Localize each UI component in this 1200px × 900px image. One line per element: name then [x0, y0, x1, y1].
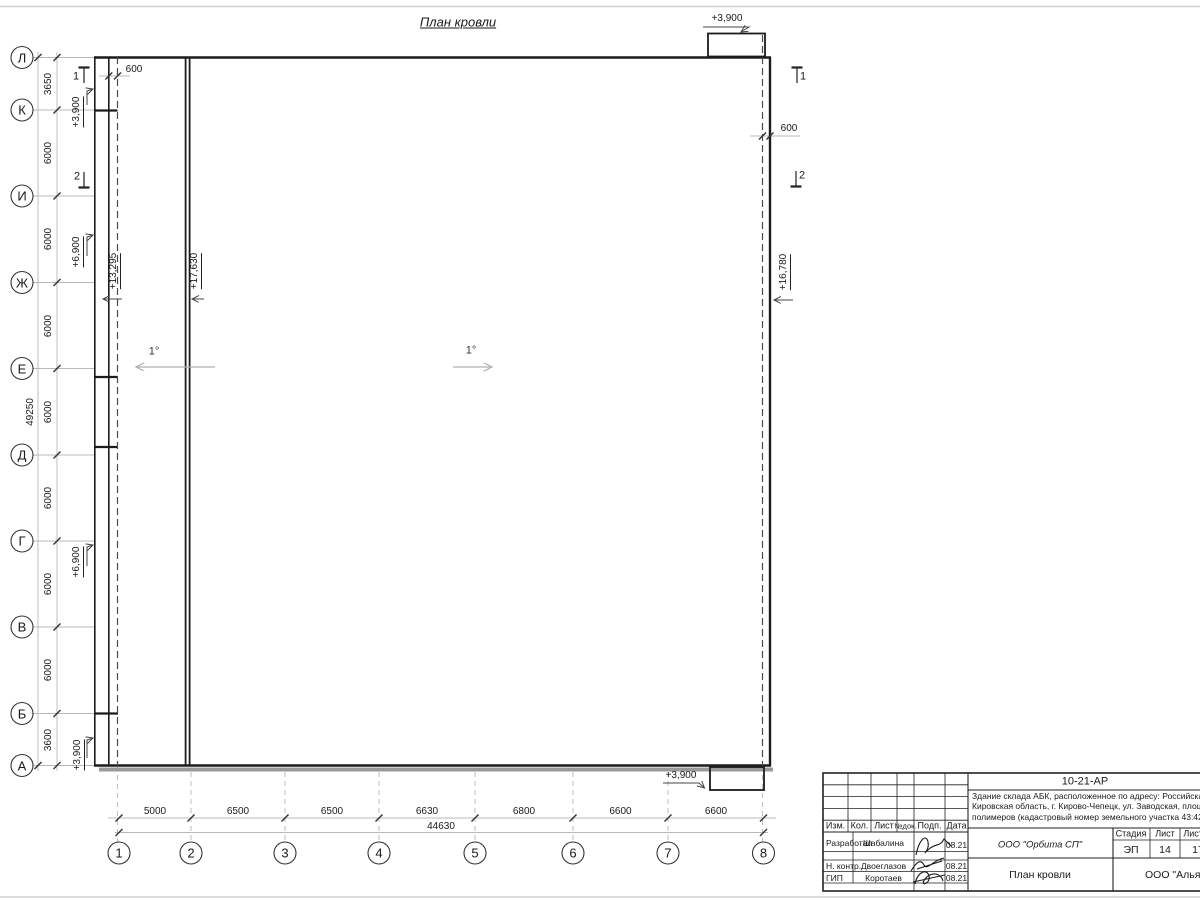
axis-col-5: 5	[471, 847, 478, 860]
elev-wall-top: +3,900	[72, 97, 84, 128]
dim-bottom-3: 6500	[321, 807, 343, 817]
drawing-sheet: План кровли Л К И Ж Е Д Г В Б А 1 2 3 4 …	[0, 0, 1200, 900]
axis-row-I: И	[17, 190, 26, 203]
section-1-right: 1	[800, 72, 806, 83]
axis-col-4: 4	[375, 847, 382, 860]
axis-row-Zh: Ж	[16, 276, 28, 289]
axis-row-L: Л	[18, 51, 27, 64]
axis-row-A: А	[18, 759, 27, 772]
row-date-3: 08.21	[946, 873, 967, 882]
axis-row-D: Д	[18, 449, 27, 462]
dim-bottom-5: 6800	[513, 807, 535, 817]
axis-row-K: К	[18, 104, 26, 117]
axis-row-B: Б	[18, 707, 27, 720]
dim-parapet-right: 600	[781, 124, 798, 134]
sheet-value: 14	[1159, 844, 1171, 855]
row-date-2: 08.21	[946, 862, 967, 871]
sheets-label: Листов	[1183, 830, 1200, 839]
row-name-dvoeglazov: Двоеглазов	[861, 862, 906, 871]
section-1-left: 1	[73, 72, 79, 83]
sheet-title: План кровли	[420, 16, 496, 29]
dim-bottom-1: 5000	[144, 807, 166, 817]
row-name-korotaev: Коротаев	[865, 873, 902, 882]
dim-bottom-7: 6600	[705, 807, 727, 817]
axis-col-6: 6	[569, 847, 576, 860]
dim-left-6: 6000	[44, 487, 54, 509]
elevation-leaders	[87, 27, 793, 788]
dim-left-5: 6000	[44, 401, 54, 423]
dim-parapet-left: 600	[126, 65, 143, 75]
dim-bottom-6: 6600	[609, 807, 631, 817]
stage-value: ЭП	[1123, 844, 1138, 855]
stage-label: Стадия	[1116, 830, 1147, 839]
axis-col-8: 8	[760, 847, 767, 860]
dim-bottom-total: 44630	[427, 822, 455, 832]
address-line2: Кировская область, г. Кирово-Чепецк, ул.…	[972, 802, 1200, 811]
canopy-rects	[708, 34, 765, 791]
elev-roof-right: +16,780	[779, 254, 791, 290]
row-name-shabalina: Шабалина	[863, 839, 904, 848]
company-name: ООО "Альянс	[1145, 870, 1200, 881]
axis-col-2: 2	[187, 847, 194, 860]
page-border	[0, 7, 1200, 898]
row-date-1: 08.21	[946, 841, 967, 850]
col-podp: Подп.	[918, 822, 942, 831]
extension-lines	[33, 52, 800, 842]
address-line3: полимеров (кадастровый номер земельного …	[972, 813, 1200, 822]
elev-wall-bottom: +3,900	[73, 740, 85, 771]
org-name: ООО "Орбита СП"	[998, 840, 1082, 850]
building-outline	[94, 57, 771, 766]
section-2-right: 2	[799, 171, 805, 182]
elev-wall-lower-mid: +6,900	[72, 547, 84, 578]
elev-canopy-bottom: +3,900	[666, 771, 697, 781]
col-data: Дата	[947, 822, 967, 831]
elev-roof-main: +17,630	[190, 253, 202, 289]
roof-plan-geometry	[0, 0, 1200, 900]
axis-col-3: 3	[281, 847, 288, 860]
col-ndok: №док.	[895, 822, 917, 830]
dim-left-4: 6000	[44, 314, 54, 336]
elev-roof-low: +13,295	[109, 253, 121, 289]
dim-left-9: 3600	[44, 728, 54, 750]
dim-left-total: 49250	[26, 398, 36, 426]
elev-canopy-top: +3,900	[712, 14, 743, 24]
row-role-nkontr: Н. контр.	[826, 862, 861, 871]
slope-main-label: 1°	[466, 346, 477, 357]
dim-left-8: 6000	[44, 659, 54, 681]
row-role-gip: ГИП	[826, 874, 843, 883]
dim-left-1: 3650	[44, 73, 54, 95]
axis-row-E: Е	[18, 362, 27, 375]
col-izm: Изм.	[826, 822, 845, 831]
dim-left-3: 6000	[44, 228, 54, 250]
slope-left-label: 1°	[149, 347, 160, 358]
elev-wall-upper-mid: +6,900	[72, 237, 84, 268]
dim-left-7: 6000	[44, 573, 54, 595]
axis-row-V: В	[18, 621, 27, 634]
axis-col-7: 7	[664, 847, 671, 860]
dim-bottom-4: 6630	[416, 807, 438, 817]
col-list: Лист	[874, 822, 894, 831]
dim-left-2: 6000	[44, 142, 54, 164]
address-line1: Здание склада АБК, расположенное по адре…	[972, 792, 1200, 801]
doc-number: 10-21-АР	[1062, 776, 1108, 787]
drawing-name: План кровли	[1009, 869, 1071, 880]
col-kol: Кол.	[851, 822, 869, 831]
sheet-label: Лист	[1155, 830, 1175, 839]
axis-bubbles	[11, 47, 775, 865]
section-marks	[79, 68, 803, 188]
axis-col-1: 1	[115, 847, 122, 860]
axis-row-G: Г	[18, 535, 25, 548]
parapet-dashed-lines	[118, 35, 763, 766]
dim-bottom-2: 6500	[227, 807, 249, 817]
section-2-left: 2	[74, 172, 80, 183]
sheets-value: 17	[1192, 844, 1200, 855]
dimension-ticks	[35, 54, 774, 836]
